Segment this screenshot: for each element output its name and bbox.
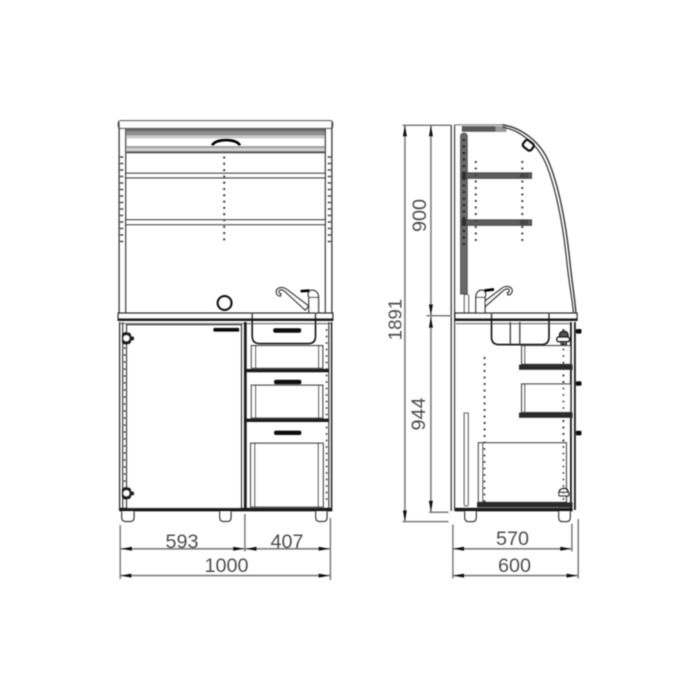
svg-text:407: 407	[270, 531, 303, 553]
svg-text:1891: 1891	[384, 299, 405, 340]
svg-text:593: 593	[165, 531, 198, 553]
svg-text:570: 570	[496, 528, 529, 550]
svg-text:900: 900	[409, 199, 431, 232]
svg-text:1000: 1000	[204, 555, 248, 577]
svg-text:944: 944	[408, 397, 430, 430]
svg-text:600: 600	[498, 555, 531, 577]
